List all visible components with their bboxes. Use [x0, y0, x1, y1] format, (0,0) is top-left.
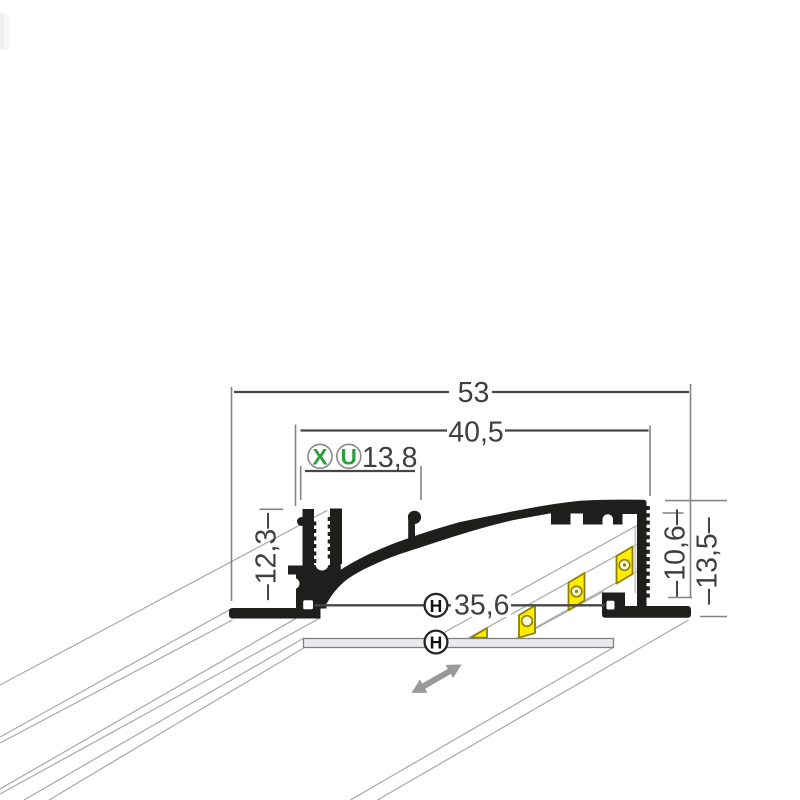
- svg-text:H: H: [430, 596, 443, 616]
- svg-text:–12,3–: –12,3–: [251, 513, 283, 600]
- svg-text:35,6: 35,6: [454, 590, 509, 622]
- svg-text:13,8: 13,8: [362, 442, 417, 474]
- svg-text:U: U: [341, 444, 357, 469]
- svg-text:–13,5–: –13,5–: [692, 517, 724, 604]
- svg-text:–10,6–: –10,6–: [660, 509, 692, 596]
- svg-text:40,5: 40,5: [448, 417, 503, 449]
- svg-text:53: 53: [458, 377, 490, 409]
- svg-text:X: X: [312, 444, 327, 469]
- svg-text:H: H: [430, 633, 443, 653]
